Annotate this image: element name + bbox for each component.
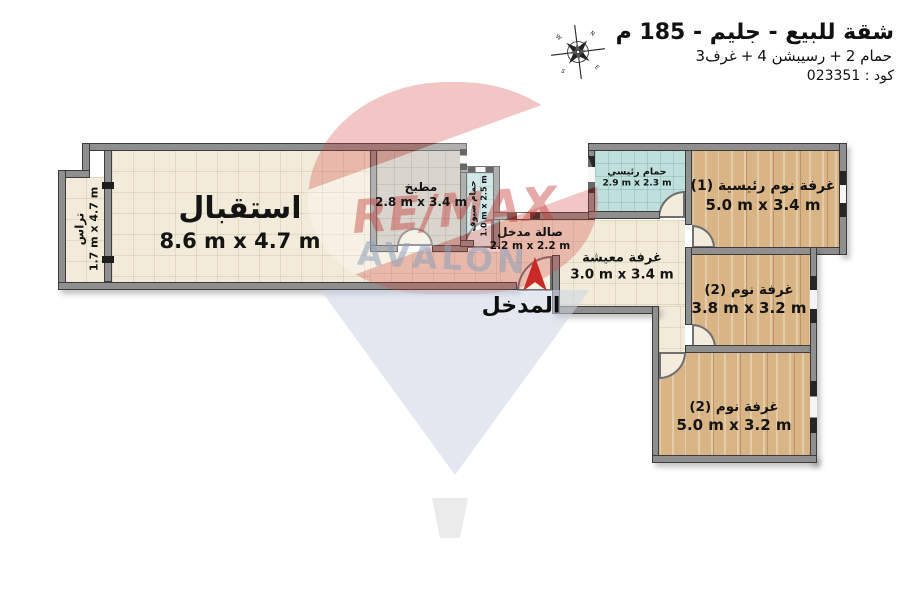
room-guest-bath-label: حمام ضيوف 1.0 m x 2.5 m (469, 175, 490, 236)
summary-part: 4 رسيبشن (757, 47, 825, 65)
room-name: غرفة معيشة (570, 250, 673, 266)
window-marker (588, 156, 595, 193)
room-living-label: غرفة معيشة 3.0 m x 3.4 m (570, 250, 673, 283)
room-dims: 5.0 m x 3.4 m (691, 195, 836, 214)
room-main-bath-label: حمام رئيسي 2.9 m x 2.3 m (603, 166, 672, 189)
window-marker (468, 167, 493, 172)
room-bedroom-3-label: غرفة نوم (2) 5.0 m x 3.2 m (677, 399, 792, 435)
room-name: مطبخ (375, 180, 467, 195)
compass-letter-n: N (589, 30, 596, 37)
plus-sign: + (741, 47, 754, 65)
listing-summary: 3غرف+4 رسيبشن+2 حمام (616, 47, 894, 65)
wall-segment (588, 143, 847, 151)
wall-segment (652, 306, 659, 463)
wall-segment (58, 282, 517, 290)
window-marker (507, 213, 540, 219)
window-frame-tick (102, 256, 114, 263)
summary-part: 3غرف (696, 47, 737, 65)
listing-code: كود : 023351 (616, 68, 894, 84)
wall-segment (685, 247, 847, 255)
room-bedroom-2-label: غرفة نوم (2) 3.8 m x 3.2 m (692, 282, 807, 318)
room-terrace-label: تراس 1.7 m x 4.7 m (73, 187, 102, 271)
floorplan-canvas: شقة للبيع - جليم - 185 م 3غرف+4 رسيبشن+2… (0, 0, 900, 600)
room-name: غرفة نوم رئيسية (1) (691, 178, 836, 196)
room-dims: 1.7 m x 4.7 m (88, 187, 102, 271)
window-marker (810, 276, 817, 323)
wall-segment (652, 455, 817, 463)
room-dims: 3.0 m x 3.4 m (570, 267, 673, 284)
room-master-bedroom-label: غرفة نوم رئيسية (1) 5.0 m x 3.4 m (691, 178, 836, 214)
plus-sign: + (829, 47, 842, 65)
room-dims: 1.0 m x 2.5 m (479, 175, 489, 236)
room-name: حمام رئيسي (603, 166, 672, 178)
window-marker (460, 149, 467, 170)
window-marker (810, 381, 817, 433)
compass-letter-w: W (554, 34, 562, 42)
room-dims: 5.0 m x 3.2 m (677, 416, 792, 435)
room-name: غرفة نوم (2) (692, 282, 807, 299)
window-marker (840, 171, 846, 217)
wall-segment (552, 306, 659, 314)
room-name: صالة مدخل (490, 225, 570, 240)
compass-letter-e: E (593, 64, 600, 71)
wall-segment (588, 211, 660, 219)
room-dims: 3.8 m x 3.2 m (692, 299, 807, 318)
room-entry-hall-label: صالة مدخل 2.2 m x 2.2 m (490, 225, 570, 253)
wall-segment (370, 245, 398, 252)
entrance-label: المدخل (482, 294, 561, 319)
room-name: تراس (73, 187, 88, 271)
room-dims: 2.9 m x 2.3 m (603, 178, 672, 189)
room-kitchen-label: مطبخ 2.8 m x 3.4 m (375, 180, 467, 210)
room-name: استقبال (160, 190, 321, 228)
summary-part: 2 حمام (846, 47, 892, 65)
room-name: حمام ضيوف (469, 175, 480, 236)
room-reception-label: استقبال 8.6 m x 4.7 m (160, 190, 321, 254)
wall-segment (58, 170, 66, 290)
wall-segment (82, 143, 467, 151)
wall-segment (685, 345, 817, 353)
watermark-balloon-basket (432, 498, 468, 538)
window-frame-tick (102, 182, 114, 189)
room-name: غرفة نوم (2) (677, 399, 792, 416)
room-dims: 2.2 m x 2.2 m (490, 240, 570, 253)
room-dims: 8.6 m x 4.7 m (160, 228, 321, 254)
page-title: شقة للبيع - جليم - 185 م (616, 20, 894, 45)
compass-letter-s: S (559, 68, 566, 75)
room-dims: 2.8 m x 3.4 m (375, 195, 467, 210)
wall-segment (460, 240, 474, 247)
header-block: شقة للبيع - جليم - 185 م 3غرف+4 رسيبشن+2… (616, 20, 894, 84)
compass-icon: N E S W (551, 24, 605, 80)
